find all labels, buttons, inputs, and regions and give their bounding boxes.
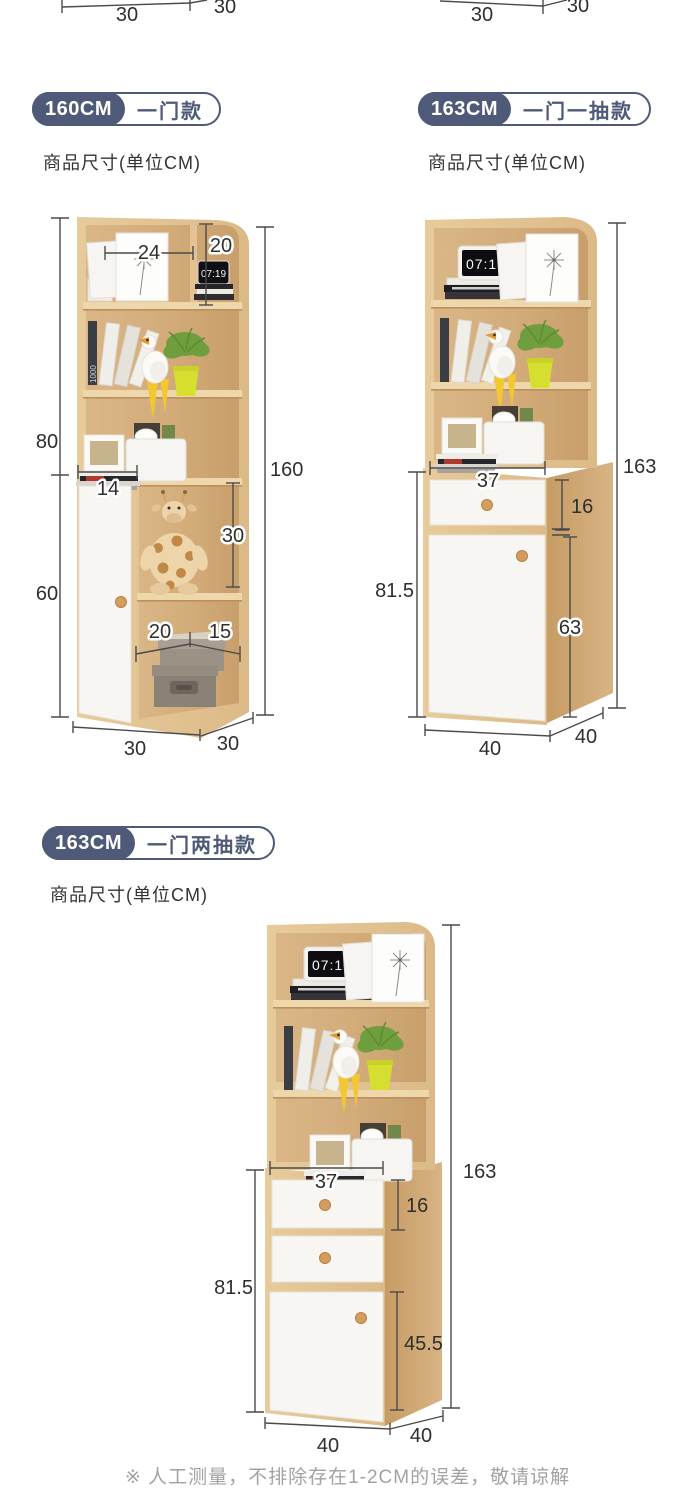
dim-base-depth: 30 bbox=[567, 0, 589, 17]
dim-base-width: 40 bbox=[479, 738, 501, 760]
cabinet-door bbox=[270, 1292, 383, 1422]
book-spine-label: 1000 bbox=[89, 365, 98, 383]
measurement-disclaimer: ※ 人工测量，不排除存在1-2CM的误差，敬请谅解 bbox=[0, 1462, 695, 1489]
dim-lower-height: 81.5 bbox=[375, 580, 414, 602]
top-partial-diagram-right: 30 30 bbox=[420, 0, 670, 42]
dim-middle-shelf-height: 30 bbox=[222, 525, 244, 547]
badge-style-label: 一门款 bbox=[125, 95, 219, 124]
top-partial-diagram-left: 30 30 bbox=[40, 0, 290, 42]
dim-cabinet-width: 37 bbox=[477, 470, 499, 492]
badge-style-label: 一门两抽款 bbox=[135, 829, 273, 858]
dim-total-height: 160 bbox=[270, 459, 303, 481]
dim-base-width: 30 bbox=[471, 4, 493, 26]
drawer-knob-1 bbox=[320, 1200, 331, 1211]
cabinet-diagram-163-door-two-drawers: 163 37 16 81.5 45.5 40 40 bbox=[180, 910, 510, 1495]
dim-base-width: 30 bbox=[124, 738, 146, 760]
cabinet-door bbox=[429, 535, 545, 721]
dim-total-height: 163 bbox=[623, 456, 656, 478]
variant-badge-160: 160CM 一门款 bbox=[32, 92, 221, 126]
badge-height-label: 160CM bbox=[32, 92, 125, 126]
drawer-knob-2 bbox=[320, 1253, 331, 1264]
dim-top-right-height: 20 bbox=[210, 235, 232, 257]
dim-base-depth: 30 bbox=[214, 0, 236, 18]
dim-door-height: 63 bbox=[559, 617, 581, 639]
variant-badge-163-b: 163CM 一门两抽款 bbox=[42, 826, 275, 860]
badge-height-label: 163CM bbox=[42, 826, 135, 860]
dim-bottom-left-width: 20 bbox=[149, 621, 171, 643]
dim-bottom-right-width: 15 bbox=[209, 621, 231, 643]
dim-upper-height: 80 bbox=[36, 431, 58, 453]
dim-base-width: 30 bbox=[116, 4, 138, 26]
product-dimension-page: 30 30 30 30 160CM 一门款 商品尺寸(单位CM) 163CM 一… bbox=[0, 0, 695, 1498]
dim-top-shelf-width: 24 bbox=[138, 242, 160, 264]
dim-drawer-height: 16 bbox=[571, 496, 593, 518]
cabinet-diagram-163-door-drawer: 163 37 16 63 81.5 40 40 bbox=[380, 190, 680, 775]
dim-base-depth: 40 bbox=[575, 726, 597, 748]
size-subtitle-2: 商品尺寸(单位CM) bbox=[428, 149, 586, 175]
size-subtitle-3: 商品尺寸(单位CM) bbox=[50, 881, 208, 907]
dim-base-width: 40 bbox=[317, 1435, 339, 1457]
door-knob bbox=[517, 551, 528, 562]
dim-lower-height: 60 bbox=[36, 583, 58, 605]
dim-drawer-height: 16 bbox=[406, 1195, 428, 1217]
dim-door-top-width: 14 bbox=[97, 478, 119, 500]
door-knob bbox=[116, 597, 127, 608]
badge-height-label: 163CM bbox=[418, 92, 511, 126]
dim-door-height: 45.5 bbox=[404, 1333, 443, 1355]
dim-cabinet-width: 37 bbox=[315, 1171, 337, 1193]
clock-time-small: 07:19 bbox=[201, 269, 226, 280]
dim-base-depth: 40 bbox=[410, 1425, 432, 1447]
dim-total-height: 163 bbox=[463, 1161, 496, 1183]
drawer-knob bbox=[482, 500, 493, 511]
door-knob bbox=[356, 1313, 367, 1324]
variant-badge-163-a: 163CM 一门一抽款 bbox=[418, 92, 651, 126]
dim-base-depth: 30 bbox=[217, 733, 239, 755]
cabinet-diagram-160: 07:19 bbox=[20, 195, 340, 770]
dim-lower-height: 81.5 bbox=[214, 1277, 253, 1299]
size-subtitle-1: 商品尺寸(单位CM) bbox=[43, 149, 201, 175]
badge-style-label: 一门一抽款 bbox=[511, 95, 649, 124]
